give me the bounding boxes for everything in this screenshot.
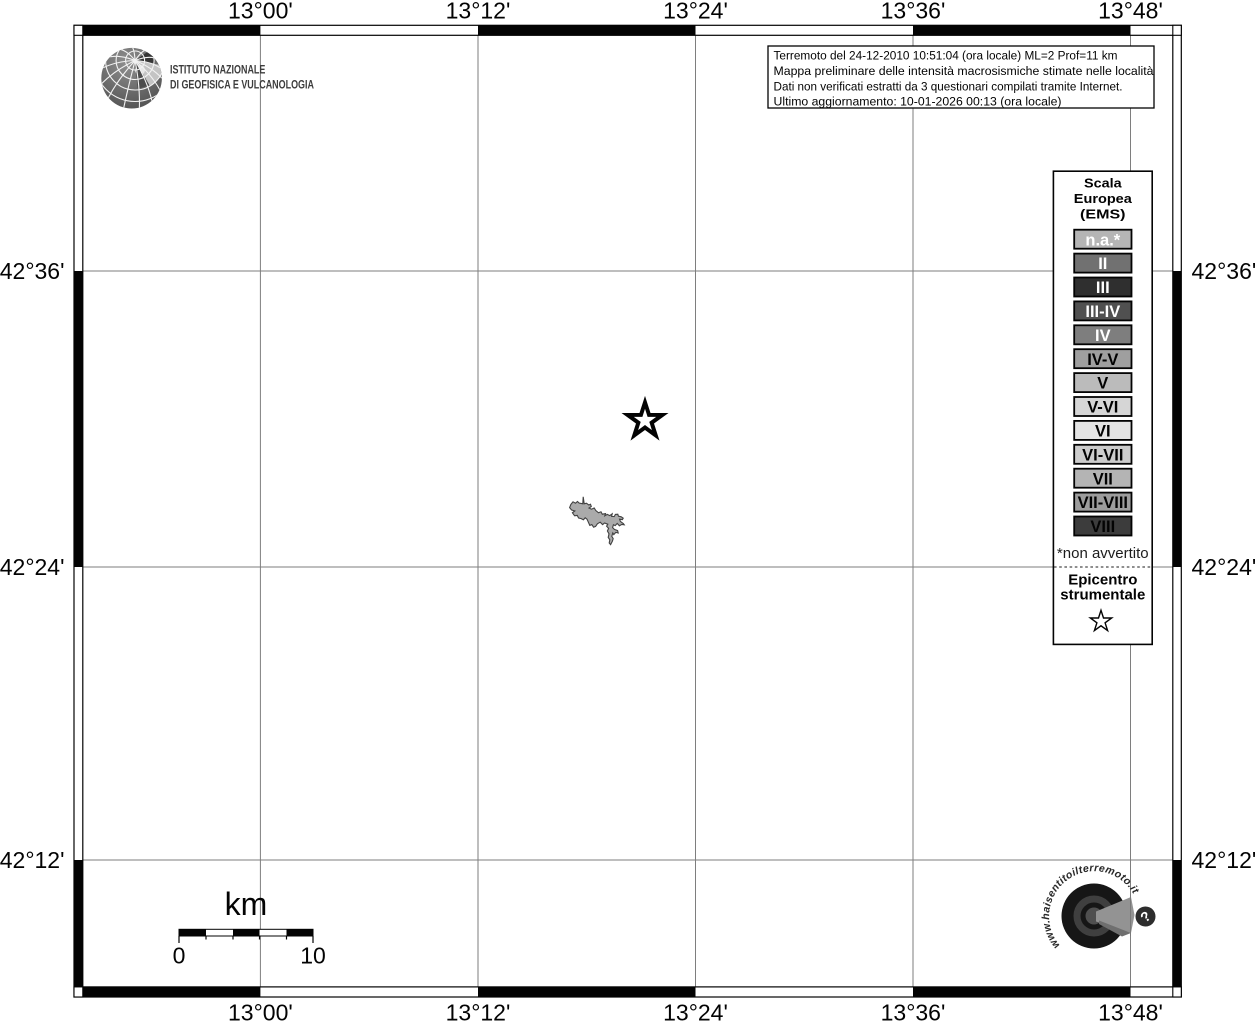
svg-text:13°00': 13°00' xyxy=(228,0,293,24)
svg-text:VIII: VIII xyxy=(1090,518,1115,536)
svg-text:13°24': 13°24' xyxy=(663,1000,728,1024)
svg-text:13°00': 13°00' xyxy=(228,1000,293,1024)
svg-text:VI-VII: VI-VII xyxy=(1082,446,1123,464)
svg-text:13°48': 13°48' xyxy=(1098,1000,1163,1024)
svg-text:n.a.*: n.a.* xyxy=(1085,231,1120,249)
svg-text:*non avvertito: *non avvertito xyxy=(1057,545,1149,562)
svg-text:III: III xyxy=(1096,279,1110,297)
svg-text:strumentale: strumentale xyxy=(1060,587,1145,604)
svg-text:42°12': 42°12' xyxy=(1192,847,1255,873)
svg-text:IV-V: IV-V xyxy=(1087,351,1118,369)
svg-text:Terremoto del 24-12-2010 10:51: Terremoto del 24-12-2010 10:51:04 (ora l… xyxy=(774,49,1118,63)
svg-text:0: 0 xyxy=(173,943,186,969)
svg-text:13°24': 13°24' xyxy=(663,0,728,24)
svg-text:13°12': 13°12' xyxy=(446,1000,511,1024)
svg-text:10: 10 xyxy=(300,943,326,969)
svg-text:km: km xyxy=(225,886,268,922)
svg-text:(EMS): (EMS) xyxy=(1080,207,1126,222)
svg-text:Scala: Scala xyxy=(1084,176,1122,191)
svg-text:42°24': 42°24' xyxy=(0,554,65,580)
svg-text:VII-VIII: VII-VIII xyxy=(1078,494,1128,512)
svg-text:Ultimo aggiornamento: 10-01-20: Ultimo aggiornamento: 10-01-2026 00:13 (… xyxy=(774,95,1062,109)
svg-text:III-IV: III-IV xyxy=(1085,303,1120,321)
svg-text:13°36': 13°36' xyxy=(881,0,946,24)
svg-text:VI: VI xyxy=(1095,423,1111,441)
svg-text:DI GEOFISICA E VULCANOLOGIA: DI GEOFISICA E VULCANOLOGIA xyxy=(170,80,314,92)
svg-text:42°12': 42°12' xyxy=(0,847,65,873)
svg-text:Mappa preliminare delle intens: Mappa preliminare delle intensità macros… xyxy=(774,64,1154,78)
svg-text:V-VI: V-VI xyxy=(1087,399,1118,417)
svg-text:13°48': 13°48' xyxy=(1098,0,1163,24)
svg-text:13°36': 13°36' xyxy=(881,1000,946,1024)
svg-text:II: II xyxy=(1098,255,1107,273)
svg-text:ISTITUTO NAZIONALE: ISTITUTO NAZIONALE xyxy=(170,65,265,77)
svg-text:Dati non verificati estratti d: Dati non verificati estratti da 3 questi… xyxy=(774,79,1123,93)
svg-text:IV: IV xyxy=(1095,327,1111,345)
svg-text:42°24': 42°24' xyxy=(1192,554,1255,580)
svg-text:Europea: Europea xyxy=(1074,191,1133,206)
svg-text:V: V xyxy=(1097,375,1108,393)
svg-text:42°36': 42°36' xyxy=(1192,258,1255,284)
svg-text:13°12': 13°12' xyxy=(446,0,511,24)
svg-text:42°36': 42°36' xyxy=(0,258,65,284)
svg-text:VII: VII xyxy=(1093,470,1113,488)
